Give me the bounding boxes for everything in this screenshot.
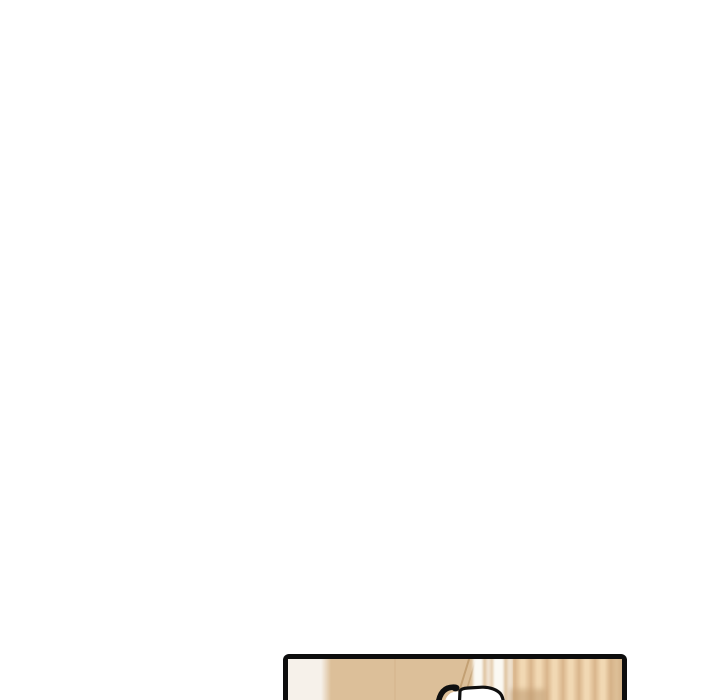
sfx-letter-left-arc-end	[452, 685, 460, 692]
sfx-letter-bar	[459, 687, 504, 700]
plank-stripes	[510, 659, 622, 700]
webtoon-gutter	[0, 0, 720, 700]
comic-panel	[283, 654, 627, 700]
right-edge-shade	[606, 659, 622, 700]
plank-corner-shadow	[510, 689, 546, 700]
panel-artwork	[288, 659, 622, 700]
